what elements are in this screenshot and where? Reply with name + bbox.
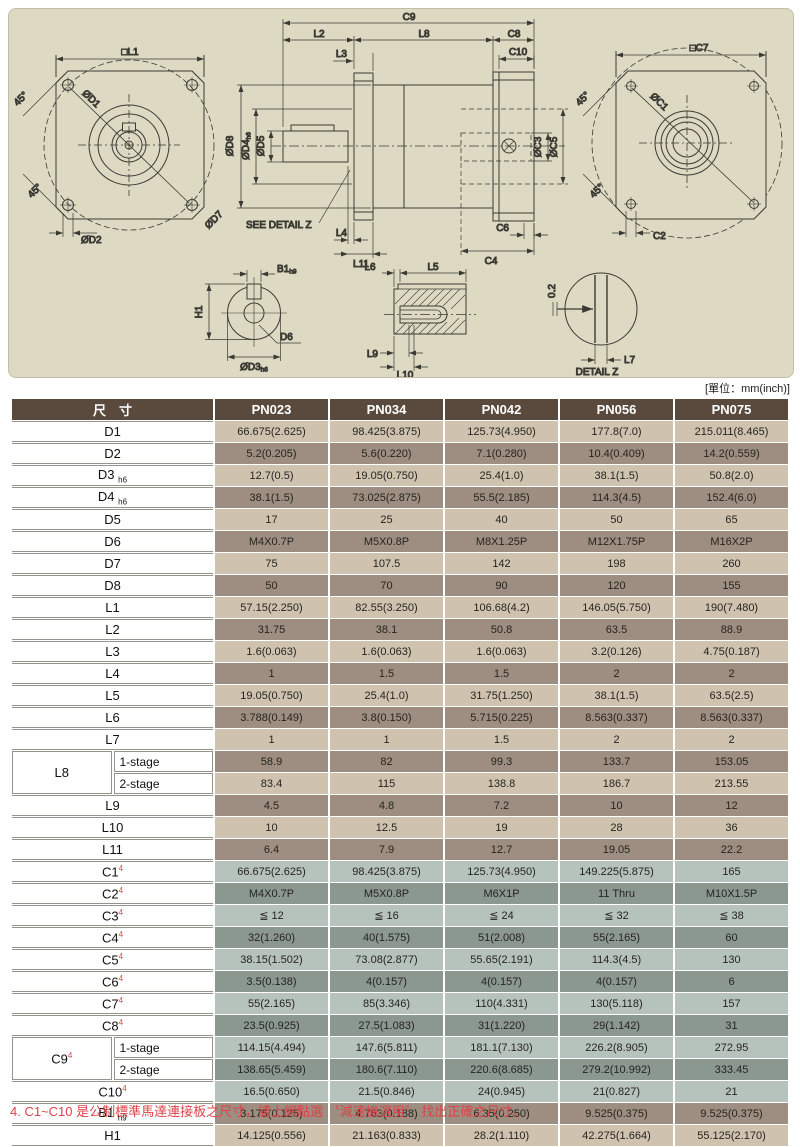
- dim-value-cell: 38.1(1.5): [215, 487, 328, 508]
- dim-value-cell: 38.1(1.5): [560, 465, 673, 486]
- stage-label: 1-stage: [114, 751, 214, 772]
- row-label-text: L2: [105, 622, 119, 637]
- dim-value-cell: 73.025(2.875): [330, 487, 443, 508]
- row-label-text: C10: [98, 1084, 122, 1099]
- row-label: C24: [12, 883, 213, 904]
- row-label: D2: [12, 443, 213, 464]
- table-row: C7455(2.165)85(3.346)110(4.331)130(5.118…: [12, 993, 788, 1014]
- section-view: C9 L2 L8 C8 L3 C10 ØD8 ØD4h6 ØD5: [225, 12, 568, 270]
- dim-label-l10: L10: [397, 370, 414, 377]
- dim-value-cell: 25.4(1.0): [330, 685, 443, 706]
- dim-label-c7: □C7: [690, 43, 709, 54]
- row-label: D8: [12, 575, 213, 596]
- table-row: 2-stage83.4115138.8186.7213.55: [12, 773, 788, 794]
- dim-value-cell: 106.68(4.2): [445, 597, 558, 618]
- dim-value-cell: 90: [445, 575, 558, 596]
- dim-value-cell: 1: [215, 663, 328, 684]
- dim-label-d8: ØD8: [225, 135, 236, 156]
- dim-value-cell: 50: [560, 509, 673, 530]
- dim-value-cell: 1.6(0.063): [215, 641, 328, 662]
- table-row: C4432(1.260)40(1.575)51(2.008)55(2.165)6…: [12, 927, 788, 948]
- dim-value-cell: 28: [560, 817, 673, 838]
- dim-label-l8: L8: [418, 29, 430, 40]
- rear-view: ØC1 □C7 45° 45° C2: [574, 43, 782, 242]
- row-label-text: D2: [104, 446, 121, 461]
- dim-value-cell: 5.2(0.205): [215, 443, 328, 464]
- row-label: L6: [12, 707, 213, 728]
- dim-value-cell: 4(0.157): [330, 971, 443, 992]
- dim-label-l7: L7: [624, 355, 636, 366]
- shaft-side-detail: L6 L5 L9 L10: [364, 262, 476, 377]
- table-row: D25.2(0.205)5.6(0.220)7.1(0.280)10.4(0.4…: [12, 443, 788, 464]
- gearbox-drawing: ØD1 □L1 45° 45° ØD2 ØD7: [9, 9, 793, 377]
- dim-value-cell: 21.163(0.833): [330, 1125, 443, 1146]
- table-row: C941-stage114.15(4.494)147.6(5.811)181.1…: [12, 1037, 788, 1058]
- row-label: L11: [12, 839, 213, 860]
- dim-value-cell: 149.225(5.875): [560, 861, 673, 882]
- table-row: L116.47.912.719.0522.2: [12, 839, 788, 860]
- row-label-superscript: 4: [119, 864, 123, 873]
- angle-label-45-rear-top: 45°: [574, 90, 592, 108]
- dim-value-cell: 10.4(0.409): [560, 443, 673, 464]
- dim-value-cell: 12.7(0.5): [215, 465, 328, 486]
- row-label-text: L10: [102, 820, 124, 835]
- table-row: L63.788(0.149)3.8(0.150)5.715(0.225)8.56…: [12, 707, 788, 728]
- row-label: D1: [12, 421, 213, 442]
- dimension-table-wrap: 尺 寸PN023PN034PN042PN056PN075D166.675(2.6…: [10, 398, 790, 1147]
- dim-value-cell: 70: [330, 575, 443, 596]
- dim-value-cell: 2: [675, 729, 788, 750]
- dim-label-l3: L3: [336, 49, 348, 60]
- row-label-superscript: 4: [119, 908, 123, 917]
- dim-label-c3: ØC3: [533, 136, 544, 157]
- dim-value-cell: 10: [215, 817, 328, 838]
- stage-label: 1-stage: [114, 1037, 214, 1058]
- table-row: C24M4X0.7PM5X0.8PM6X1P11 ThruM10X1.5P: [12, 883, 788, 904]
- column-header-pn042: PN042: [445, 399, 558, 420]
- dim-value-cell: 55(2.165): [215, 993, 328, 1014]
- dim-value-cell: 55(2.165): [560, 927, 673, 948]
- row-label: C74: [12, 993, 213, 1014]
- dim-value-cell: 19.05: [560, 839, 673, 860]
- dim-value-cell: 190(7.480): [675, 597, 788, 618]
- stage-label: 2-stage: [114, 1059, 214, 1080]
- dim-value-cell: M10X1.5P: [675, 883, 788, 904]
- dim-value-cell: 180.6(7.110): [330, 1059, 443, 1080]
- dim-value-cell: 38.1: [330, 619, 443, 640]
- dim-value-cell: 2: [560, 663, 673, 684]
- dim-value-cell: 4(0.157): [445, 971, 558, 992]
- dim-value-cell: 57.15(2.250): [215, 597, 328, 618]
- row-label-text: D5: [104, 512, 121, 527]
- dim-value-cell: 8.563(0.337): [560, 707, 673, 728]
- angle-label-45-bottom: 45°: [26, 182, 44, 200]
- row-label-superscript: 4: [119, 930, 123, 939]
- row-label-text: D3: [98, 467, 115, 482]
- dim-value-cell: 7.9: [330, 839, 443, 860]
- dim-value-cell: 12.7: [445, 839, 558, 860]
- dim-label-l1: □L1: [121, 47, 139, 58]
- dim-value-cell: 12.5: [330, 817, 443, 838]
- dim-value-cell: 213.55: [675, 773, 788, 794]
- dim-value-cell: 3.5(0.138): [215, 971, 328, 992]
- table-row: D166.675(2.625)98.425(3.875)125.73(4.950…: [12, 421, 788, 442]
- dim-value-cell: 279.2(10.992): [560, 1059, 673, 1080]
- hatching: [395, 289, 465, 334]
- dim-value-cell: 125.73(4.950): [445, 421, 558, 442]
- dim-value-cell: 272.95: [675, 1037, 788, 1058]
- row-label: L3: [12, 641, 213, 662]
- dim-value-cell: 25: [330, 509, 443, 530]
- dim-value-cell: 27.5(1.083): [330, 1015, 443, 1036]
- dim-value-cell: 83.4: [215, 773, 328, 794]
- dim-value-cell: 22.2: [675, 839, 788, 860]
- row-label-text: D4: [98, 489, 115, 504]
- dim-value-cell: ≦ 38: [675, 905, 788, 926]
- dim-value-cell: 12: [675, 795, 788, 816]
- dim-value-cell: M16X2P: [675, 531, 788, 552]
- dim-value-cell: 98.425(3.875): [330, 421, 443, 442]
- dim-value-cell: 19.05(0.750): [215, 685, 328, 706]
- row-label: C54: [12, 949, 213, 970]
- dim-value-cell: 40: [445, 509, 558, 530]
- dim-label-d6: D6: [280, 332, 293, 343]
- table-row: L101012.5192836: [12, 817, 788, 838]
- dim-value-cell: 38.15(1.502): [215, 949, 328, 970]
- dim-value-cell: 1.6(0.063): [330, 641, 443, 662]
- row-label-text: L3: [105, 644, 119, 659]
- dim-value-cell: 5.6(0.220): [330, 443, 443, 464]
- table-row: D6M4X0.7PM5X0.8PM8X1.25PM12X1.75PM16X2P: [12, 531, 788, 552]
- dim-value-cell: 63.5: [560, 619, 673, 640]
- row-label-text: C6: [102, 974, 119, 989]
- dim-label-c6: C6: [496, 223, 509, 234]
- dim-value-cell: 32(1.260): [215, 927, 328, 948]
- dim-value-cell: 9.525(0.375): [560, 1103, 673, 1124]
- dim-label-l5: L5: [427, 262, 439, 273]
- shaft-end-detail: B1h9 H1 D6 ØD3h6: [194, 264, 301, 374]
- dim-value-cell: 28.2(1.110): [445, 1125, 558, 1146]
- dim-value-cell: 31: [675, 1015, 788, 1036]
- dim-value-cell: 63.5(2.5): [675, 685, 788, 706]
- dimension-header: 尺 寸: [12, 399, 213, 420]
- row-label: L7: [12, 729, 213, 750]
- table-row: L7111.522: [12, 729, 788, 750]
- dim-value-cell: 75: [215, 553, 328, 574]
- dim-value-cell: 31(1.220): [445, 1015, 558, 1036]
- dim-value-cell: ≦ 16: [330, 905, 443, 926]
- dim-value-cell: M12X1.75P: [560, 531, 673, 552]
- row-label: D5: [12, 509, 213, 530]
- dim-value-cell: 4.5: [215, 795, 328, 816]
- see-detail-z-label: SEE DETAIL Z: [246, 220, 312, 231]
- dim-value-cell: 181.1(7.130): [445, 1037, 558, 1058]
- table-row: 2-stage138.65(5.459)180.6(7.110)220.6(8.…: [12, 1059, 788, 1080]
- dim-label-l6: L6: [364, 262, 376, 273]
- dim-value-cell: 130(5.118): [560, 993, 673, 1014]
- row-label: L2: [12, 619, 213, 640]
- dim-value-cell: 130: [675, 949, 788, 970]
- dim-value-cell: 1.5: [445, 663, 558, 684]
- table-row: L157.15(2.250)82.55(3.250)106.68(4.2)146…: [12, 597, 788, 618]
- dim-label-c2: C2: [653, 231, 666, 242]
- table-row: C5438.15(1.502)73.08(2.877)55.65(2.191)1…: [12, 949, 788, 970]
- dim-value-cell: 17: [215, 509, 328, 530]
- dim-value-cell: 1.5: [445, 729, 558, 750]
- dim-value-cell: 8.563(0.337): [675, 707, 788, 728]
- row-label-text: D8: [104, 578, 121, 593]
- dim-label-c5: ØC5: [549, 136, 560, 157]
- table-row: D4 h638.1(1.5)73.025(2.875)55.5(2.185)11…: [12, 487, 788, 508]
- dim-value-cell: 50.8(2.0): [675, 465, 788, 486]
- table-row: L94.54.87.21012: [12, 795, 788, 816]
- dim-label-c4: C4: [485, 256, 498, 267]
- dim-value-cell: 14.2(0.559): [675, 443, 788, 464]
- dim-value-cell: 220.6(8.685): [445, 1059, 558, 1080]
- dim-value-cell: 142: [445, 553, 558, 574]
- row-label: C64: [12, 971, 213, 992]
- table-row: L31.6(0.063)1.6(0.063)1.6(0.063)3.2(0.12…: [12, 641, 788, 662]
- row-label-superscript: 4: [122, 1084, 126, 1093]
- dim-value-cell: 1: [215, 729, 328, 750]
- dimension-table: 尺 寸PN023PN034PN042PN056PN075D166.675(2.6…: [10, 398, 790, 1147]
- dim-value-cell: 125.73(4.950): [445, 861, 558, 882]
- row-label-text: L5: [105, 688, 119, 703]
- row-label-superscript: 4: [119, 952, 123, 961]
- dim-value-cell: 16.5(0.650): [215, 1081, 328, 1102]
- dim-value-cell: ≦ 32: [560, 905, 673, 926]
- dim-label-gap: 0.2: [547, 284, 558, 298]
- table-row: C8423.5(0.925)27.5(1.083)31(1.220)29(1.1…: [12, 1015, 788, 1036]
- dim-value-cell: 215.011(8.465): [675, 421, 788, 442]
- table-row: D775107.5142198260: [12, 553, 788, 574]
- dim-value-cell: 55.5(2.185): [445, 487, 558, 508]
- dim-value-cell: M4X0.7P: [215, 883, 328, 904]
- dim-value-cell: 1.6(0.063): [445, 641, 558, 662]
- row-label: D4 h6: [12, 487, 213, 508]
- row-label-group: C94: [12, 1037, 112, 1080]
- row-label: L9: [12, 795, 213, 816]
- row-label: D7: [12, 553, 213, 574]
- dim-value-cell: 60: [675, 927, 788, 948]
- dim-value-cell: 11 Thru: [560, 883, 673, 904]
- dim-value-cell: 7.2: [445, 795, 558, 816]
- row-label-text: D7: [104, 556, 121, 571]
- detail-z: 0.2 L7 DETAIL Z: [547, 273, 637, 377]
- dim-value-cell: 6.4: [215, 839, 328, 860]
- row-label-superscript: 4: [119, 974, 123, 983]
- row-label-subscript: h6: [118, 497, 127, 506]
- row-label-text: C8: [102, 1018, 119, 1033]
- row-label-text: C4: [102, 930, 119, 945]
- row-label-text: C1: [102, 864, 119, 879]
- row-label-text: C7: [102, 996, 119, 1011]
- dim-label-d2: ØD2: [81, 235, 102, 246]
- dim-value-cell: 99.3: [445, 751, 558, 772]
- column-header-pn034: PN034: [330, 399, 443, 420]
- dim-value-cell: 40(1.575): [330, 927, 443, 948]
- table-row: C1466.675(2.625)98.425(3.875)125.73(4.95…: [12, 861, 788, 882]
- dim-value-cell: 6: [675, 971, 788, 992]
- dim-value-cell: 155: [675, 575, 788, 596]
- dim-value-cell: 66.675(2.625): [215, 421, 328, 442]
- row-label: C84: [12, 1015, 213, 1036]
- dim-value-cell: 24(0.945): [445, 1081, 558, 1102]
- table-row: L81-stage58.98299.3133.7153.05: [12, 751, 788, 772]
- dim-label-h1: H1: [194, 305, 205, 318]
- dim-label-d1: ØD1: [80, 88, 103, 111]
- dim-value-cell: 55.125(2.170): [675, 1125, 788, 1146]
- dim-value-cell: 4.8: [330, 795, 443, 816]
- dim-value-cell: 50.8: [445, 619, 558, 640]
- row-label-text: D6: [104, 534, 121, 549]
- dim-value-cell: M5X0.8P: [330, 531, 443, 552]
- dim-value-cell: 21(0.827): [560, 1081, 673, 1102]
- dim-value-cell: 65: [675, 509, 788, 530]
- dim-value-cell: 2: [675, 663, 788, 684]
- row-label: L4: [12, 663, 213, 684]
- angle-label-45-top: 45°: [12, 90, 30, 108]
- dim-label-d4: ØD4h6: [241, 132, 253, 160]
- dim-value-cell: 25.4(1.0): [445, 465, 558, 486]
- dim-value-cell: 3.2(0.126): [560, 641, 673, 662]
- technical-drawing-panel: ØD1 □L1 45° 45° ØD2 ØD7: [8, 8, 794, 378]
- footnote: 4. C1~C10 是公制標準馬達連接板之尺寸，請上網點選 〝減速機選用〞 找出…: [10, 1101, 525, 1120]
- row-label-superscript: 4: [119, 886, 123, 895]
- row-label: L10: [12, 817, 213, 838]
- dim-value-cell: 98.425(3.875): [330, 861, 443, 882]
- dim-value-cell: 31.75: [215, 619, 328, 640]
- dim-value-cell: 107.5: [330, 553, 443, 574]
- dim-label-d7: ØD7: [203, 209, 226, 232]
- dim-label-l9: L9: [367, 349, 379, 360]
- dim-value-cell: 9.525(0.375): [675, 1103, 788, 1124]
- dim-value-cell: 42.275(1.664): [560, 1125, 673, 1146]
- dim-value-cell: 120: [560, 575, 673, 596]
- table-row: C34≦ 12≦ 16≦ 24≦ 32≦ 38: [12, 905, 788, 926]
- dim-value-cell: 147.6(5.811): [330, 1037, 443, 1058]
- row-label-text: C5: [102, 952, 119, 967]
- row-label-text: H1: [104, 1128, 121, 1143]
- table-row: D8507090120155: [12, 575, 788, 596]
- dim-value-cell: 14.125(0.556): [215, 1125, 328, 1146]
- dim-value-cell: 3.788(0.149): [215, 707, 328, 728]
- dim-value-cell: M4X0.7P: [215, 531, 328, 552]
- dim-value-cell: M8X1.25P: [445, 531, 558, 552]
- front-view: ØD1 □L1 45° 45° ØD2 ØD7: [12, 47, 226, 246]
- dim-label-b1: B1h9: [277, 264, 297, 276]
- dim-value-cell: 146.05(5.750): [560, 597, 673, 618]
- dim-value-cell: 82.55(3.250): [330, 597, 443, 618]
- table-row: D3 h612.7(0.5)19.05(0.750)25.4(1.0)38.1(…: [12, 465, 788, 486]
- row-label-text: C3: [102, 908, 119, 923]
- dim-value-cell: 19: [445, 817, 558, 838]
- row-label-text: L9: [105, 798, 119, 813]
- row-label: C34: [12, 905, 213, 926]
- dim-value-cell: 138.65(5.459): [215, 1059, 328, 1080]
- dim-value-cell: 3.8(0.150): [330, 707, 443, 728]
- stage-label: 2-stage: [114, 773, 214, 794]
- row-label-text: L6: [105, 710, 119, 725]
- dim-value-cell: 36: [675, 817, 788, 838]
- table-row: C643.5(0.138)4(0.157)4(0.157)4(0.157)6: [12, 971, 788, 992]
- dim-label-d3: ØD3h6: [240, 362, 268, 374]
- dim-value-cell: 19.05(0.750): [330, 465, 443, 486]
- dim-value-cell: 7.1(0.280): [445, 443, 558, 464]
- dim-value-cell: 333.45: [675, 1059, 788, 1080]
- dim-label-d5: ØD5: [256, 135, 267, 156]
- dim-value-cell: 114.3(4.5): [560, 487, 673, 508]
- dim-value-cell: 88.9: [675, 619, 788, 640]
- column-header-pn056: PN056: [560, 399, 673, 420]
- dim-value-cell: 66.675(2.625): [215, 861, 328, 882]
- row-label: D3 h6: [12, 465, 213, 486]
- row-label: L1: [12, 597, 213, 618]
- table-row: L231.7538.150.863.588.9: [12, 619, 788, 640]
- dim-value-cell: 186.7: [560, 773, 673, 794]
- dim-value-cell: 82: [330, 751, 443, 772]
- dim-label-c8: C8: [508, 29, 521, 40]
- row-label-text: D1: [104, 424, 121, 439]
- table-row: L519.05(0.750)25.4(1.0)31.75(1.250)38.1(…: [12, 685, 788, 706]
- dim-value-cell: 4.75(0.187): [675, 641, 788, 662]
- row-label-superscript: 4: [119, 1018, 123, 1027]
- dim-value-cell: 2: [560, 729, 673, 750]
- row-label-text: L8: [55, 765, 69, 780]
- dim-value-cell: 138.8: [445, 773, 558, 794]
- dim-value-cell: 1: [330, 729, 443, 750]
- dim-value-cell: 21: [675, 1081, 788, 1102]
- detail-z-caption: DETAIL Z: [576, 367, 619, 377]
- dim-value-cell: 31.75(1.250): [445, 685, 558, 706]
- dim-value-cell: 4(0.157): [560, 971, 673, 992]
- row-label-superscript: 4: [68, 1051, 72, 1060]
- column-header-pn075: PN075: [675, 399, 788, 420]
- row-label: L5: [12, 685, 213, 706]
- dim-value-cell: 73.08(2.877): [330, 949, 443, 970]
- dim-value-cell: 55.65(2.191): [445, 949, 558, 970]
- row-label-text: C2: [102, 886, 119, 901]
- table-row: H114.125(0.556)21.163(0.833)28.2(1.110)4…: [12, 1125, 788, 1146]
- dim-value-cell: 153.05: [675, 751, 788, 772]
- dim-value-cell: 133.7: [560, 751, 673, 772]
- row-label: D6: [12, 531, 213, 552]
- dim-value-cell: ≦ 12: [215, 905, 328, 926]
- row-label: H1: [12, 1125, 213, 1146]
- dim-value-cell: 177.8(7.0): [560, 421, 673, 442]
- dim-value-cell: 58.9: [215, 751, 328, 772]
- table-row: C10416.5(0.650)21.5(0.846)24(0.945)21(0.…: [12, 1081, 788, 1102]
- dim-label-c10: C10: [509, 47, 528, 58]
- dim-value-cell: 165: [675, 861, 788, 882]
- table-row: D51725405065: [12, 509, 788, 530]
- dim-value-cell: 29(1.142): [560, 1015, 673, 1036]
- row-label-text: L1: [105, 600, 119, 615]
- dim-value-cell: 114.3(4.5): [560, 949, 673, 970]
- column-header-pn023: PN023: [215, 399, 328, 420]
- dim-value-cell: 114.15(4.494): [215, 1037, 328, 1058]
- row-label-subscript: h6: [118, 475, 127, 484]
- dim-value-cell: 85(3.346): [330, 993, 443, 1014]
- dim-value-cell: 51(2.008): [445, 927, 558, 948]
- row-label-group: L8: [12, 751, 112, 794]
- angle-label-45-rear-bottom: 45°: [588, 182, 606, 200]
- row-label-text: L11: [102, 842, 123, 857]
- dim-label-c9: C9: [403, 12, 416, 23]
- dim-value-cell: 157: [675, 993, 788, 1014]
- dim-value-cell: 1.5: [330, 663, 443, 684]
- dim-value-cell: 226.2(8.905): [560, 1037, 673, 1058]
